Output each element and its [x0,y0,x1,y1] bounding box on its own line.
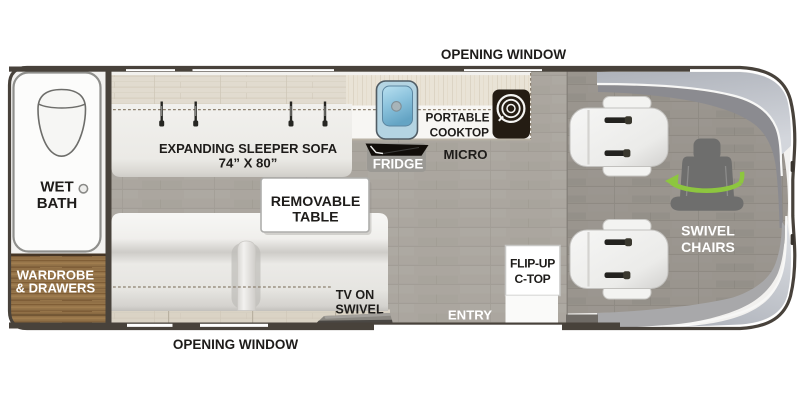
svg-text:TV ON: TV ON [336,288,374,302]
svg-text:FRIDGE: FRIDGE [373,157,424,172]
svg-text:OPENING WINDOW: OPENING WINDOW [441,47,567,62]
svg-text:BATH: BATH [37,195,78,212]
svg-text:REMOVABLE: REMOVABLE [271,194,361,210]
svg-text:74” X 80”: 74” X 80” [219,156,278,171]
svg-text:C-TOP: C-TOP [515,272,551,286]
svg-text:PORTABLE: PORTABLE [425,111,489,125]
svg-text:SWIVEL: SWIVEL [681,223,735,239]
svg-text:& DRAWERS: & DRAWERS [16,281,96,296]
svg-text:OPENING WINDOW: OPENING WINDOW [173,337,299,352]
svg-text:CHAIRS: CHAIRS [681,239,735,255]
svg-text:COOKTOP: COOKTOP [430,126,490,140]
svg-text:ENTRY: ENTRY [448,308,492,323]
svg-text:FLIP-UP: FLIP-UP [510,257,555,271]
svg-text:MICRO: MICRO [444,147,488,162]
svg-text:WET: WET [40,179,73,196]
svg-text:TABLE: TABLE [292,210,338,226]
svg-text:EXPANDING SLEEPER SOFA: EXPANDING SLEEPER SOFA [159,141,337,156]
